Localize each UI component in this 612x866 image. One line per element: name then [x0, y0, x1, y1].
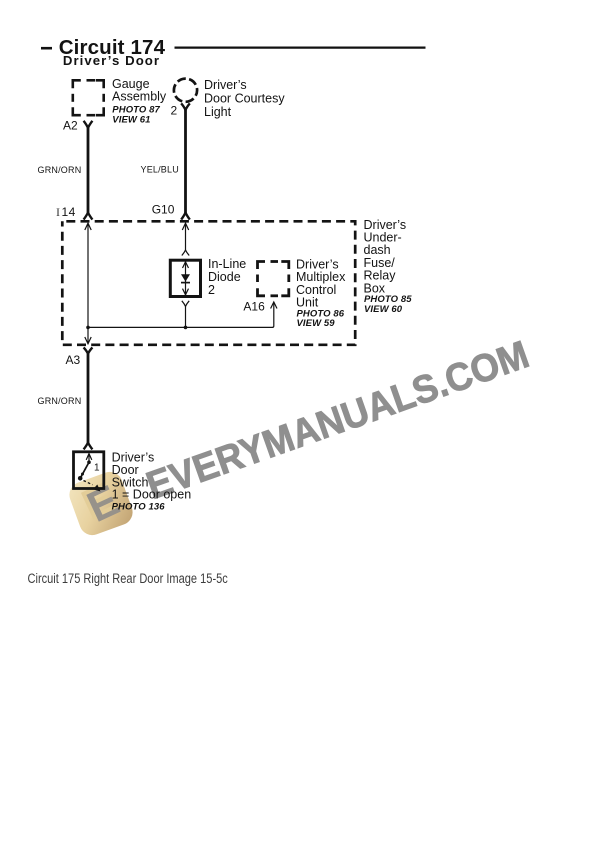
svg-text:I14: I14 [56, 205, 76, 219]
svg-text:A3: A3 [66, 353, 81, 367]
svg-text:Door Courtesy: Door Courtesy [204, 92, 285, 106]
svg-text:VIEW 61: VIEW 61 [112, 115, 150, 126]
svg-text:1 = Door open: 1 = Door open [112, 488, 192, 502]
svg-text:Circuit 175 Right Rear Door Im: Circuit 175 Right Rear Door Image 15-5c [28, 571, 228, 587]
svg-text:GRN/ORN: GRN/ORN [38, 396, 82, 406]
svg-text:VIEW 59: VIEW 59 [297, 318, 336, 329]
svg-text:Diode: Diode [208, 270, 241, 284]
svg-text:2: 2 [171, 104, 178, 118]
svg-text:G10: G10 [152, 203, 175, 217]
svg-text:Light: Light [204, 105, 232, 119]
svg-text:In-Line: In-Line [208, 257, 246, 271]
svg-text:2: 2 [208, 283, 215, 297]
svg-text:YEL/BLU: YEL/BLU [141, 165, 179, 175]
svg-text:GRN/ORN: GRN/ORN [38, 165, 82, 175]
svg-text:Assembly: Assembly [112, 90, 167, 104]
svg-text:1: 1 [94, 463, 100, 474]
svg-text:Driver’s Door: Driver’s Door [63, 53, 160, 68]
svg-text:EVERYMANUALS.COM: EVERYMANUALS.COM [141, 333, 534, 508]
svg-text:VIEW 60: VIEW 60 [364, 304, 403, 315]
svg-text:PHOTO 136: PHOTO 136 [112, 502, 166, 513]
svg-text:A16: A16 [243, 300, 265, 314]
svg-text:Driver’s: Driver’s [204, 78, 247, 92]
svg-text:Unit: Unit [296, 296, 319, 310]
svg-text:A2: A2 [63, 119, 78, 133]
